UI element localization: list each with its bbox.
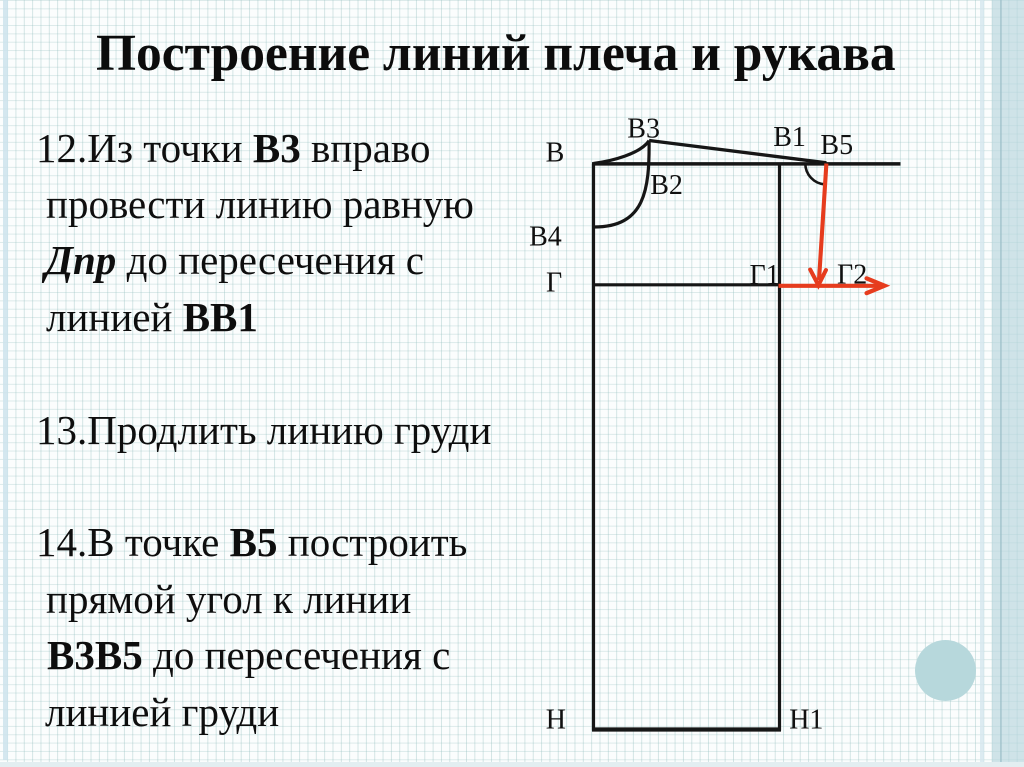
svg-text:Н: Н	[546, 705, 566, 736]
svg-text:В2: В2	[650, 170, 683, 201]
svg-text:В3: В3	[627, 113, 660, 144]
svg-text:Г2: Г2	[837, 259, 867, 290]
svg-text:В4: В4	[529, 222, 562, 253]
svg-text:Г1: Г1	[750, 260, 780, 291]
svg-text:В5: В5	[820, 130, 853, 161]
svg-text:В1: В1	[773, 122, 806, 153]
svg-text:Г: Г	[546, 267, 562, 298]
svg-text:Н1: Н1	[789, 705, 823, 736]
svg-text:В: В	[546, 138, 565, 169]
